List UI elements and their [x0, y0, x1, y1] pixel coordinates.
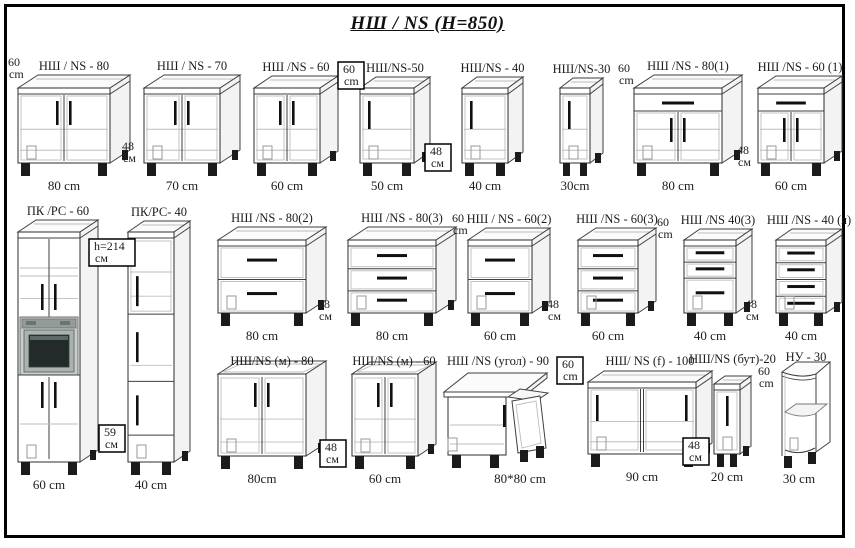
cabinet-ns-40-ya: НШ /NS - 40 (я)40 cm [767, 213, 851, 343]
dimension-note: 48см [737, 143, 751, 169]
dimension-note-line2: см [746, 309, 759, 323]
cabinet-ns-30: НШ/NS-3030cm [553, 62, 611, 193]
cabinet-title: НШ / NS - 80 [39, 59, 109, 73]
cabinet-dimension: 60 cm [775, 178, 807, 193]
cabinet-dimension: 90 cm [626, 469, 658, 484]
cabinet-dimension: 30cm [561, 178, 590, 193]
catalog-canvas: НШ / NS - 8080 cmНШ / NS - 7070 cmНШ /NS… [0, 0, 855, 548]
cabinet-title: НШ /NS - 80(2) [231, 211, 313, 225]
cabinet-pk-pc-60: ПК /РС - 6060 cm [18, 204, 98, 492]
dimension-note: h=214см [89, 239, 135, 266]
cabinet-title: НШ/NS (м) - 80 [230, 354, 313, 368]
cabinet-title: НШ/ NS (f) - 100 [606, 354, 695, 368]
cabinet-title: НШ/NS (м) - 60 [352, 354, 435, 368]
cabinet-title: НШ /NS - 60 [262, 60, 329, 74]
dimension-note: 48см [122, 139, 136, 165]
cabinet-ns-60: НШ /NS - 6060 cm [254, 60, 338, 193]
cabinet-ns-60-1: НШ /NS - 60 (1)60 cm [758, 60, 843, 193]
dimension-note-line2: см [326, 452, 339, 466]
cabinet-ns-40-3: НШ /NS 40(3)40 cm [681, 213, 755, 343]
dimension-note-line2: cm [563, 369, 578, 383]
cabinet-title: НШ /NS (угол) - 90 [447, 354, 549, 368]
cabinet-ns-60-3: НШ /NS - 60(3)60 cm [576, 212, 658, 343]
dimension-note: 60cm [8, 55, 24, 81]
dimension-note-line2: см [738, 155, 751, 169]
cabinet-dimension: 80 cm [48, 178, 80, 193]
dimension-note-line2: см [431, 156, 444, 170]
cabinet-title: НШ /NS - 80(3) [361, 211, 443, 225]
cabinet-title: НШ/NS-30 [553, 62, 611, 76]
cabinet-title: ПК /РС - 60 [27, 204, 89, 218]
dimension-note: 60cm [758, 364, 774, 390]
cabinet-dimension: 80 cm [662, 178, 694, 193]
dimension-note-line2: cm [759, 376, 774, 390]
cabinet-ns-80-2: НШ /NS - 80(2)80 cm [218, 211, 326, 343]
cabinet-dimension: 40 cm [785, 328, 817, 343]
dimension-note: 48см [745, 297, 759, 323]
dimension-note-line2: см [105, 437, 118, 451]
cabinet-ns-80-3: НШ /NS - 80(3)80 cm [348, 211, 456, 343]
cabinet-ns-40: НШ/NS - 4040 cm [460, 61, 524, 193]
cabinet-title: НШ/NS-50 [366, 61, 424, 75]
dimension-note-line2: cm [619, 73, 634, 87]
cabinet-title: ПК/РС- 40 [131, 205, 187, 219]
cabinet-dimension: 60 cm [33, 477, 65, 492]
cabinet-nu-30: НУ - 3030 cm [782, 350, 830, 486]
cabinet-dimension: 80*80 cm [494, 471, 546, 486]
dimension-note-line2: см [123, 151, 136, 165]
cabinet-ns-m-60: НШ/NS (м) - 6060 cm [352, 354, 436, 486]
cabinet-dimension: 80 cm [376, 328, 408, 343]
dimension-note-line2: cm [658, 227, 673, 241]
cabinet-title: НШ /NS - 60(3) [576, 212, 658, 226]
cabinet-title: НШ /NS - 40 (я) [767, 213, 851, 227]
cabinet-title: НШ /NS - 60 (1) [758, 60, 843, 74]
cabinet-dimension: 40 cm [469, 178, 501, 193]
cabinet-ns-50: НШ/NS-5050 cm [360, 61, 430, 193]
dimension-note: 59см [99, 425, 125, 452]
cabinet-dimension: 30 cm [783, 471, 815, 486]
dimension-note: 60cm [557, 357, 583, 384]
dimension-note: 60cm [338, 62, 364, 89]
dimension-note: 60cm [657, 215, 673, 241]
cabinet-dimension: 70 cm [166, 178, 198, 193]
cabinet-ns-70: НШ / NS - 7070 cm [144, 59, 240, 193]
cabinet-ns-ugol-90: НШ /NS (угол) - 9080*80 cm [444, 354, 549, 486]
dimension-note-line2: см [319, 309, 332, 323]
cabinet-title: НШ / NS - 60(2) [467, 212, 552, 226]
dimension-note: 48см [683, 438, 709, 465]
cabinet-ns-80-1: НШ /NS - 80(1)80 cm [634, 59, 742, 193]
cabinet-pk-pc-40: ПК/РС- 4040 cm [128, 205, 190, 492]
dimension-note-line2: cm [344, 74, 359, 88]
dimension-note-line2: см [548, 309, 561, 323]
dimension-note: 48см [320, 440, 346, 467]
cabinet-ns-60-2: НШ / NS - 60(2)60 cm [467, 212, 552, 343]
cabinet-dimension: 50 cm [371, 178, 403, 193]
cabinet-title: НШ / NS - 70 [157, 59, 227, 73]
catalog-page: НШ / NS (H=850) НШ / NS - 8080 cmНШ / NS… [0, 0, 855, 548]
dimension-note: 48см [425, 144, 451, 171]
cabinet-title: НШ /NS 40(3) [681, 213, 755, 227]
cabinet-dimension: 40 cm [694, 328, 726, 343]
dimension-note: 60cm [618, 61, 634, 87]
cabinet-title: НУ - 30 [786, 350, 827, 364]
cabinet-dimension: 80cm [248, 471, 277, 486]
cabinet-dimension: 80 cm [246, 328, 278, 343]
cabinet-dimension: 60 cm [271, 178, 303, 193]
dimension-note-line2: cm [453, 223, 468, 237]
cabinet-dimension: 60 cm [369, 471, 401, 486]
cabinet-title: НШ /NS - 80(1) [647, 59, 729, 73]
cabinet-dimension: 20 cm [711, 469, 743, 484]
dimension-note: 48см [318, 297, 332, 323]
dimension-note-line2: cm [9, 67, 24, 81]
cabinet-ns-80: НШ / NS - 8080 cm [18, 59, 130, 193]
cabinet-dimension: 60 cm [592, 328, 624, 343]
dimension-note-line2: см [95, 251, 108, 265]
cabinet-title: НШ/NS - 40 [460, 61, 524, 75]
dimension-note-line2: см [689, 450, 702, 464]
cabinet-dimension: 60 cm [484, 328, 516, 343]
cabinet-ns-m-80: НШ/NS (м) - 8080cm [218, 354, 326, 486]
cabinet-dimension: 40 cm [135, 477, 167, 492]
dimension-note: 48см [547, 297, 561, 323]
